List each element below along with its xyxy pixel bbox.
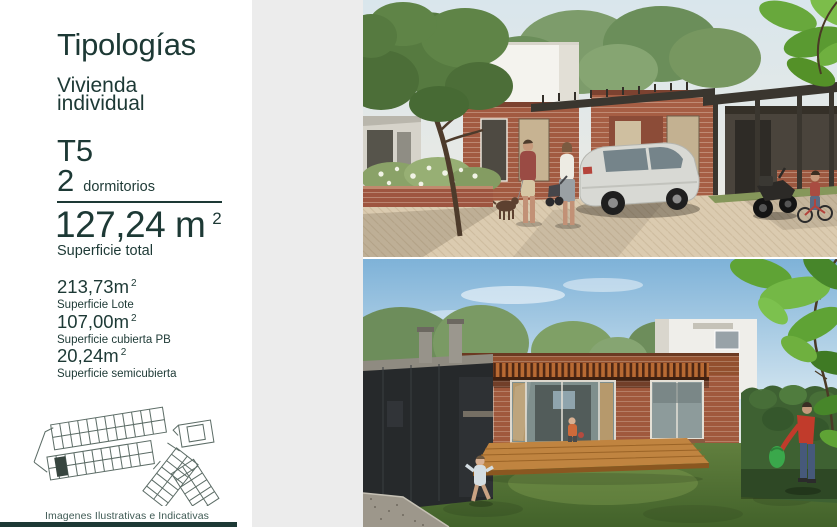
metric-lote-value: 213,73m2 xyxy=(57,276,137,298)
total-area-sup: 2 xyxy=(212,209,221,228)
site-plan-connectors xyxy=(153,443,179,469)
type-code: T5 xyxy=(57,136,93,166)
subtitle-line2: individual xyxy=(57,92,145,115)
bedrooms-label: dormitorios xyxy=(83,179,155,195)
site-plan-right-cluster xyxy=(172,459,219,506)
brochure-page: Tipologías Vivienda individual T5 2dormi… xyxy=(0,0,837,527)
gray-spacer-panel xyxy=(252,0,363,527)
subtitle: Vivienda individual xyxy=(57,77,145,113)
total-area-label: Superficie total xyxy=(57,243,153,259)
site-plan-left-tip xyxy=(34,428,53,472)
backyard-render-scene xyxy=(363,259,837,527)
info-panel: Tipologías Vivienda individual T5 2dormi… xyxy=(0,0,252,527)
metric-semicubierta-label: Superficie semicubierta xyxy=(57,368,177,380)
metric-cubierta: 107,00m2 Superficie cubierta PB xyxy=(57,311,171,346)
page-title: Tipologías xyxy=(57,27,196,63)
sliding-glass-doors xyxy=(511,381,615,443)
render-photo-backyard xyxy=(363,259,837,527)
site-plan-upper-row xyxy=(51,407,167,450)
total-area-value: 127,24 m xyxy=(55,204,205,245)
site-plan-amenity xyxy=(173,420,214,448)
total-area: 127,24 m2 xyxy=(55,204,221,246)
wood-deck xyxy=(473,438,709,485)
side-window xyxy=(649,381,705,443)
site-plan-drawing xyxy=(28,398,220,506)
metric-semicubierta-value: 20,24m2 xyxy=(57,345,177,367)
bedrooms-row: 2dormitorios xyxy=(57,163,155,199)
metric-semicubierta: 20,24m2 Superficie semicubierta xyxy=(57,345,177,380)
footer-accent-bar xyxy=(0,522,237,527)
metric-cubierta-value: 107,00m2 xyxy=(57,311,171,333)
render-photo-street xyxy=(363,0,837,257)
parked-car xyxy=(576,143,700,218)
divider-line xyxy=(57,201,222,203)
pergola-slats xyxy=(457,363,709,379)
disclaimer-text: Imagenes Ilustrativas e Indicativas xyxy=(45,510,209,522)
metric-lote: 213,73m2 Superficie Lote xyxy=(57,276,137,311)
metric-lote-label: Superficie Lote xyxy=(57,299,137,311)
bedrooms-count: 2 xyxy=(57,163,74,198)
street-render-scene xyxy=(363,0,837,257)
